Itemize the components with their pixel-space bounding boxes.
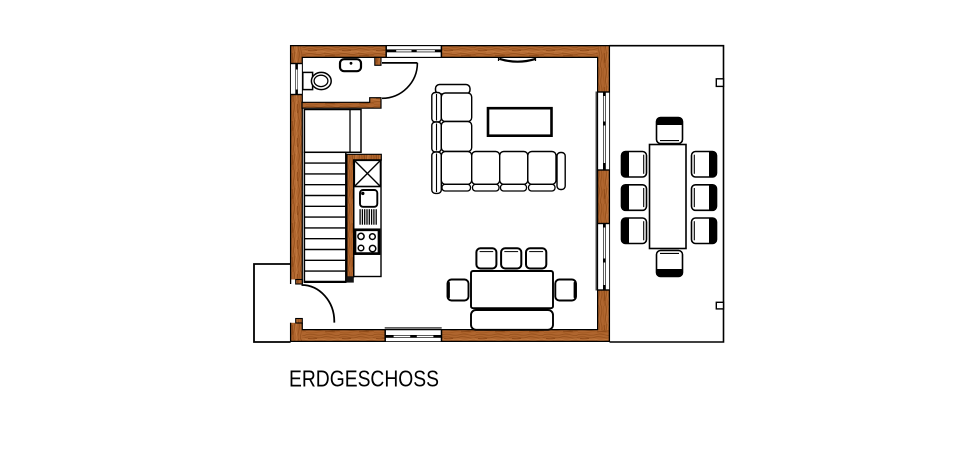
svg-text:ERDGESCHOSS: ERDGESCHOSS — [289, 366, 439, 392]
